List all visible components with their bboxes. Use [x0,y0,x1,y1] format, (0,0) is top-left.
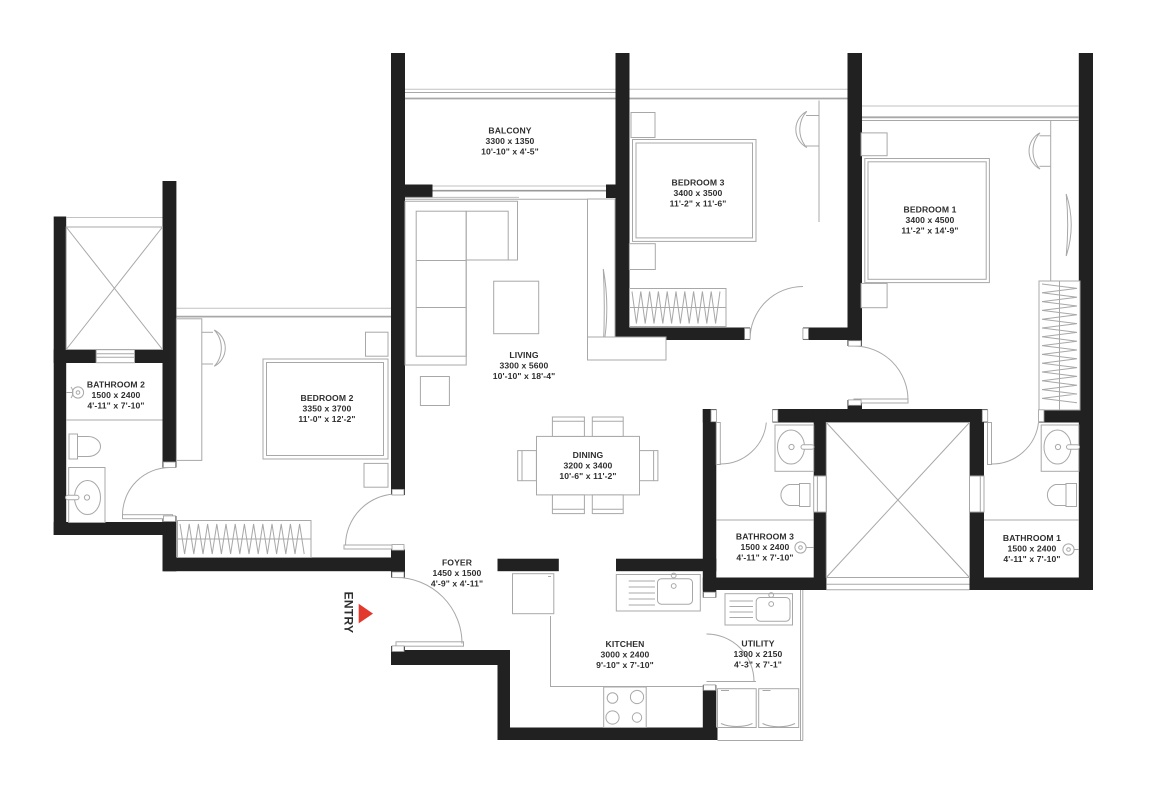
svg-text:10'-6" x 11'-2": 10'-6" x 11'-2" [559,471,616,481]
svg-text:3300 x 5600: 3300 x 5600 [500,361,549,371]
svg-text:BATHROOM 3: BATHROOM 3 [736,531,794,541]
svg-text:11'-2" x 14'-9": 11'-2" x 14'-9" [901,226,958,236]
svg-text:11'-0" x 12'-2": 11'-0" x 12'-2" [298,414,355,424]
svg-text:3000 x 2400: 3000 x 2400 [601,649,650,659]
svg-text:9'-10" x 7'-10": 9'-10" x 7'-10" [596,660,654,670]
svg-text:3400 x 4500: 3400 x 4500 [906,215,955,225]
svg-text:KITCHEN: KITCHEN [606,639,645,649]
svg-text:1450 x 1500: 1450 x 1500 [433,568,482,578]
svg-text:1500 x 2400: 1500 x 2400 [741,542,790,552]
svg-text:11'-2" x 11'-6": 11'-2" x 11'-6" [670,199,727,209]
svg-text:BATHROOM 2: BATHROOM 2 [87,380,145,390]
svg-text:4'-11" x 7'-10": 4'-11" x 7'-10" [736,552,793,562]
svg-text:4'-3" x 7'-1": 4'-3" x 7'-1" [734,660,782,670]
svg-text:3300 x 1350: 3300 x 1350 [486,136,535,146]
svg-text:10'-10" x 18'-4": 10'-10" x 18'-4" [493,371,556,381]
svg-text:BEDROOM 3: BEDROOM 3 [672,178,725,188]
svg-text:1500 x 2400: 1500 x 2400 [1008,544,1057,554]
svg-text:1500 x 2400: 1500 x 2400 [92,390,141,400]
svg-text:FOYER: FOYER [442,558,473,568]
svg-text:3400 x 3500: 3400 x 3500 [674,188,723,198]
svg-text:3350 x 3700: 3350 x 3700 [303,404,352,414]
svg-text:BEDROOM 1: BEDROOM 1 [904,205,957,215]
svg-text:BEDROOM 2: BEDROOM 2 [301,393,354,403]
svg-text:4'-11" x 7'-10": 4'-11" x 7'-10" [87,401,144,411]
svg-text:LIVING: LIVING [509,350,538,360]
svg-text:BALCONY: BALCONY [488,126,531,136]
svg-text:ENTRY: ENTRY [341,592,355,634]
svg-text:DINING: DINING [573,450,604,460]
svg-text:UTILITY: UTILITY [741,639,774,649]
svg-text:4'-9" x 4'-11": 4'-9" x 4'-11" [431,579,483,589]
svg-text:1300 x 2150: 1300 x 2150 [734,649,783,659]
svg-text:4'-11" x 7'-10": 4'-11" x 7'-10" [1003,554,1060,564]
svg-text:10'-10" x 4'-5": 10'-10" x 4'-5" [481,147,539,157]
svg-text:3200 x 3400: 3200 x 3400 [564,461,613,471]
svg-text:BATHROOM 1: BATHROOM 1 [1003,533,1061,543]
